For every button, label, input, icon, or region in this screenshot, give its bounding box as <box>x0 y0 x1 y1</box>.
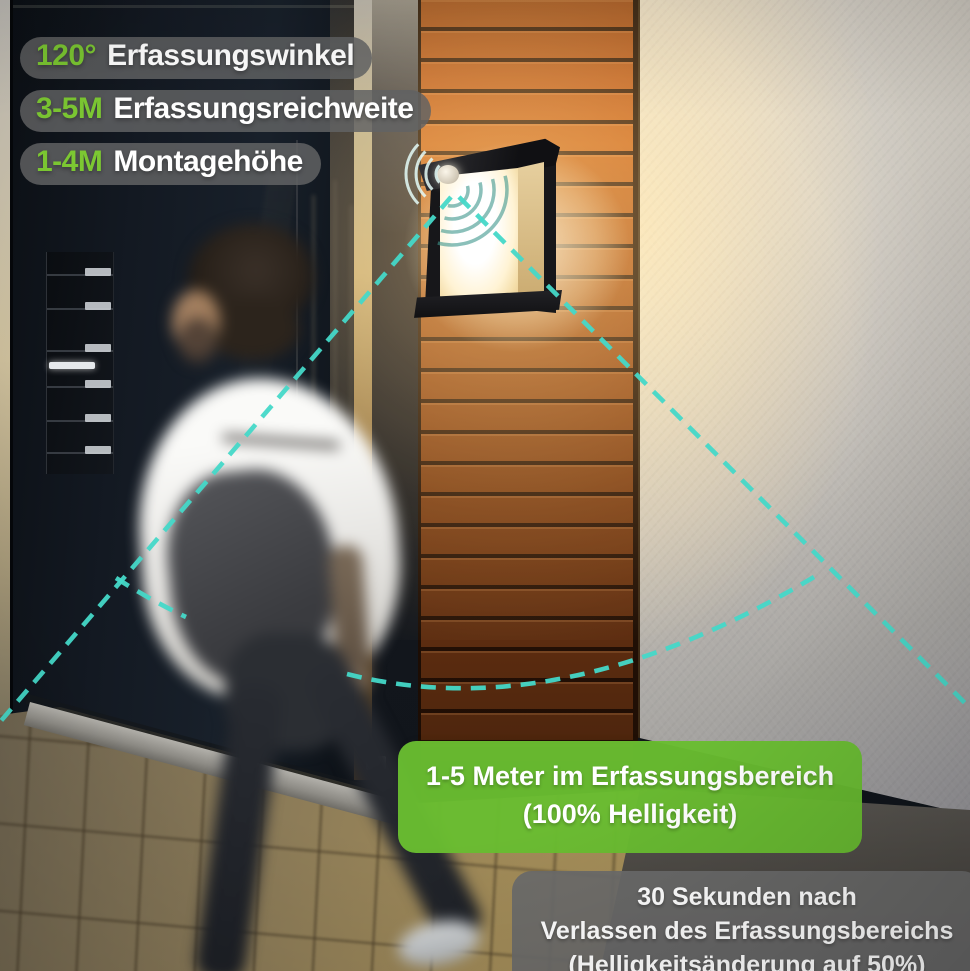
callout-after-leave: 30 Sekunden nach Verlassen des Erfassung… <box>512 871 970 971</box>
callout-line: 1-5 Meter im Erfassungsbereich <box>398 757 862 795</box>
spec-label-mounting-height: 1-4M Montagehöhe <box>20 143 321 185</box>
spec-text: Erfassungswinkel <box>107 39 354 73</box>
callout-in-range: 1-5 Meter im Erfassungsbereich (100% Hel… <box>398 741 862 853</box>
spec-label-detection-range: 3-5M Erfassungsreichweite <box>20 90 431 132</box>
door-latch-plate <box>366 756 386 770</box>
callout-line: (100% Helligkeit) <box>398 795 862 833</box>
callout-line: 30 Sekunden nach <box>512 880 970 914</box>
soffit-edge <box>0 5 360 8</box>
product-scene: 120° Erfassungswinkel 3-5M Erfassungsrei… <box>0 0 970 971</box>
wooden-slat-wall <box>418 0 638 800</box>
mailbox-slot-highlight <box>49 362 95 369</box>
lamp-light-panel <box>440 168 518 306</box>
lamp-side-panel <box>518 162 544 308</box>
glass-reflection <box>334 180 336 440</box>
glass-reflection <box>350 205 353 420</box>
stucco-wall <box>638 0 970 815</box>
spec-value: 120° <box>36 39 96 73</box>
left-wall-edge <box>0 0 13 800</box>
glass-door-seam <box>296 140 298 470</box>
spec-label-detection-angle: 120° Erfassungswinkel <box>20 37 372 79</box>
spec-value: 3-5M <box>36 92 102 126</box>
spec-value: 1-4M <box>36 145 102 179</box>
glass-reflection <box>312 195 315 425</box>
spec-text: Montagehöhe <box>113 145 303 179</box>
callout-line: (Helligkeitsänderung auf 50%) <box>512 948 970 971</box>
mailbox-unit <box>46 252 114 474</box>
motion-sensor-dome <box>437 165 459 184</box>
spec-text: Erfassungsreichweite <box>113 92 413 126</box>
callout-line: Verlassen des Erfassungsbereichs <box>512 914 970 948</box>
